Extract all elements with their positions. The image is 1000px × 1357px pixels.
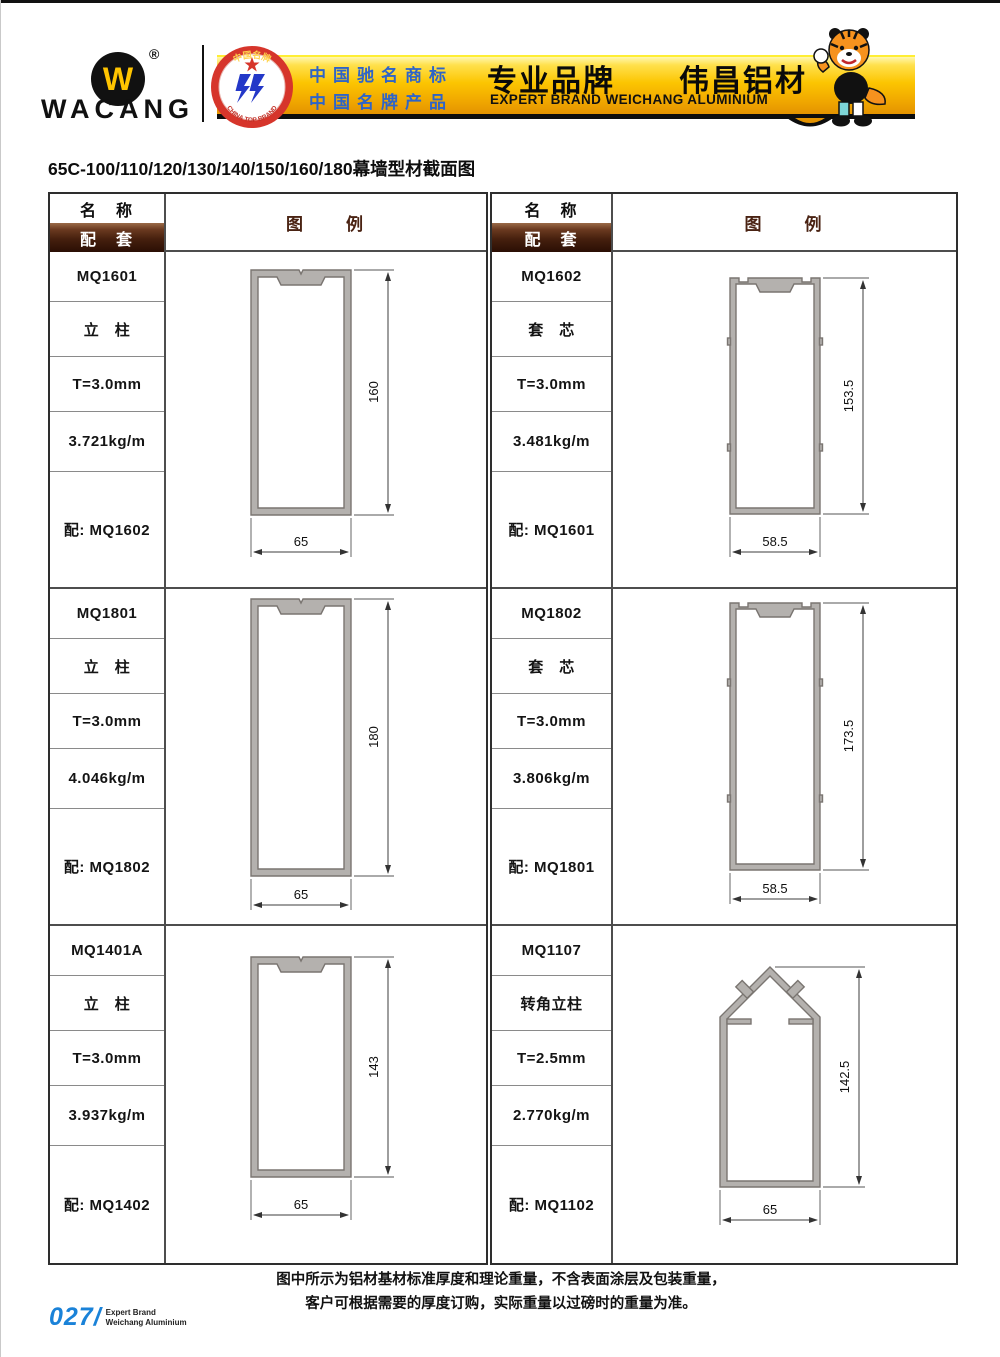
diagram-cell-mq1802: 173.5 58.5 (613, 589, 956, 926)
inner-flanges (727, 1019, 813, 1024)
page-number: 027/ (49, 1303, 102, 1332)
profile-table-left: 名 称 配 套 MQ1601 立 柱 T=3.0mm 3.721kg/m 配: … (48, 192, 488, 1265)
profile-diagram-mq1801: 180 65 (166, 589, 486, 924)
profile-match: 配: MQ1802 (50, 809, 164, 926)
profile-model: MQ1801 (50, 589, 164, 639)
height-dimension: 180 (366, 726, 381, 748)
profile-thickness: T=2.5mm (492, 1031, 611, 1086)
column-header-match: 配 套 (492, 223, 611, 252)
profile-cross-section (720, 967, 820, 1187)
profile-cross-section (251, 270, 351, 515)
header-divider (202, 45, 204, 122)
page-label-line-1: Expert Brand (106, 1308, 156, 1317)
page-number-label: Expert Brand Weichang Aluminium (106, 1308, 187, 1327)
profile-cross-section (730, 603, 820, 870)
profile-model: MQ1802 (492, 589, 611, 639)
column-header-name: 名 称 (50, 194, 164, 223)
labels-column: 名 称 配 套 MQ1601 立 柱 T=3.0mm 3.721kg/m 配: … (50, 194, 166, 1263)
width-dimension: 65 (294, 887, 308, 902)
width-dimension: 65 (294, 534, 308, 549)
side-ticks (727, 338, 822, 451)
profile-match: 配: MQ1601 (492, 472, 611, 589)
profile-tables: 名 称 配 套 MQ1601 立 柱 T=3.0mm 3.721kg/m 配: … (48, 192, 958, 1265)
profile-cross-section (251, 957, 351, 1177)
china-top-brand-badge-icon: 中国名牌 CHINA TOP BRAND (209, 44, 295, 130)
width-dimension: 65 (294, 1197, 308, 1212)
profile-weight: 3.937kg/m (50, 1086, 164, 1146)
diagram-cell-mq1107: 142.5 65 (613, 926, 956, 1263)
profile-weight: 4.046kg/m (50, 749, 164, 809)
profile-type: 立 柱 (50, 976, 164, 1031)
claim-line-2: 中国名牌产品 (309, 89, 453, 116)
profile-weight: 3.806kg/m (492, 749, 611, 809)
labels-column: 名 称 配 套 MQ1602 套 芯 T=3.0mm 3.481kg/m 配: … (492, 194, 613, 1263)
height-dimension: 142.5 (837, 1061, 852, 1094)
diagram-cell-mq1601: 160 65 (166, 252, 486, 589)
profile-model: MQ1602 (492, 252, 611, 302)
profile-thickness: T=3.0mm (492, 694, 611, 749)
profile-type: 立 柱 (50, 302, 164, 357)
profile-match: 配: MQ1602 (50, 472, 164, 589)
profile-cross-section (730, 278, 820, 514)
profile-weight: 3.481kg/m (492, 412, 611, 472)
profile-model: MQ1107 (492, 926, 611, 976)
tiger-mascot-icon (811, 26, 891, 128)
profile-diagram-mq1802: 173.5 58.5 (625, 589, 945, 924)
claim-line-1: 中国驰名商标 (309, 62, 453, 89)
profile-match: 配: MQ1801 (492, 809, 611, 926)
width-dimension: 65 (762, 1202, 776, 1217)
brand-name: WACANG (41, 94, 193, 125)
column-header-legend: 图 例 (613, 194, 956, 252)
profile-thickness: T=3.0mm (492, 357, 611, 412)
profile-thickness: T=3.0mm (50, 357, 164, 412)
page-title: 65C-100/110/120/130/140/150/160/180幕墙型材截… (48, 156, 475, 181)
banner-title-en: EXPERT BRAND WEICHANG ALUMINIUM (490, 92, 768, 107)
width-dimension: 58.5 (762, 881, 787, 896)
profile-thickness: T=3.0mm (50, 694, 164, 749)
profile-diagram-mq1602: 153.5 58.5 (625, 252, 945, 587)
profile-model: MQ1401A (50, 926, 164, 976)
profile-type: 套 芯 (492, 302, 611, 357)
profile-match: 配: MQ1402 (50, 1146, 164, 1263)
profile-diagram-mq1401a: 143 65 (166, 927, 486, 1262)
diagram-cell-mq1602: 153.5 58.5 (613, 252, 956, 589)
logo-letter: W (103, 61, 134, 97)
diagram-cell-mq1401a: 143 65 (166, 926, 486, 1263)
profile-type: 套 芯 (492, 639, 611, 694)
width-dimension: 58.5 (762, 534, 787, 549)
catalog-page: W ® WACANG 中国名牌 CHINA TOP BRAND 中国驰名商标 中… (0, 0, 1000, 1357)
profile-thickness: T=3.0mm (50, 1031, 164, 1086)
height-dimension: 153.5 (841, 380, 856, 413)
profile-diagram-mq1107: 142.5 65 (625, 927, 945, 1262)
profile-table-right: 名 称 配 套 MQ1602 套 芯 T=3.0mm 3.481kg/m 配: … (490, 192, 958, 1265)
diagram-cell-mq1801: 180 65 (166, 589, 486, 926)
profile-weight: 3.721kg/m (50, 412, 164, 472)
column-header-name: 名 称 (492, 194, 611, 223)
top-rule (1, 0, 1000, 3)
height-dimension: 173.5 (841, 720, 856, 753)
profile-type: 立 柱 (50, 639, 164, 694)
page-label-line-2: Weichang Aluminium (106, 1318, 187, 1327)
profile-weight: 2.770kg/m (492, 1086, 611, 1146)
profile-model: MQ1601 (50, 252, 164, 302)
height-dimension: 143 (366, 1056, 381, 1078)
column-header-legend: 图 例 (166, 194, 486, 252)
profile-type: 转角立柱 (492, 976, 611, 1031)
banner-claims: 中国驰名商标 中国名牌产品 (309, 62, 453, 116)
roof-notches (735, 981, 803, 999)
profile-cross-section (251, 599, 351, 876)
footer-note-line-1: 图中所示为铝材基材标准厚度和理论重量，不含表面涂层及包装重量， (1, 1268, 1000, 1292)
page-number-block: 027/ Expert Brand Weichang Aluminium (49, 1303, 187, 1332)
column-header-match: 配 套 (50, 223, 164, 252)
registered-mark: ® (149, 46, 159, 62)
profile-match: 配: MQ1102 (492, 1146, 611, 1263)
diagrams-column: 图 例 15 (613, 194, 956, 1263)
profile-diagram-mq1601: 160 65 (166, 252, 486, 587)
side-ticks (727, 679, 822, 802)
diagrams-column: 图 例 160 65 (166, 194, 486, 1263)
height-dimension: 160 (366, 381, 381, 403)
